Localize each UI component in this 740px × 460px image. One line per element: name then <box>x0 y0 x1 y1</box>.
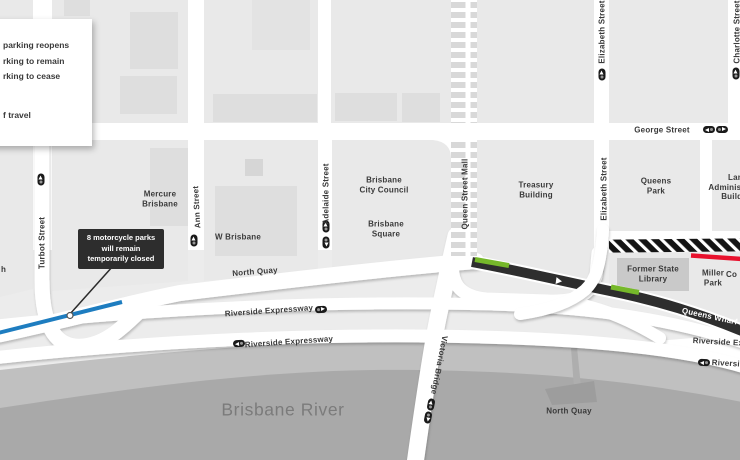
oneway-arrow-icon-riverside-right <box>698 359 710 367</box>
oneway-arrow-icon-riverside-lower <box>233 340 245 348</box>
place-label-miller-park: Miller Park <box>702 269 724 288</box>
place-label-queens-park: Queens Park <box>641 177 672 196</box>
place-label-north-quay-terminal: North Quay <box>546 406 592 416</box>
place-label-treasury: Treasury Building <box>519 181 554 200</box>
brisbane-parking-map: Turbot Street Ann Street Adelaide Street… <box>0 0 740 460</box>
street-label-adelaide: Adelaide Street <box>321 163 331 224</box>
place-label-land-admin: Land Administration Building <box>708 173 740 202</box>
street-label-charlotte: Charlotte Street <box>732 0 740 63</box>
legend-panel: parking reopens rking to remain rking to… <box>0 19 92 146</box>
legend-line-3: rking to cease <box>3 69 92 85</box>
oneway-arrow-icon-riverside-upper <box>315 306 327 314</box>
construction-hatch <box>609 238 740 252</box>
clipped-label-left-edge: h <box>1 265 6 275</box>
place-label-city-council: Brisbane City Council <box>359 176 408 195</box>
place-label-brisbane-river: Brisbane River <box>221 405 344 415</box>
place-label-former-state-library: Former State Library <box>627 265 679 284</box>
place-label-w-brisbane: W Brisbane <box>215 232 261 242</box>
oneway-arrow-icon-adelaide-down <box>323 237 330 249</box>
oneway-arrow-icon-george-right <box>716 126 728 133</box>
place-label-mercure: Mercure Brisbane <box>142 190 178 209</box>
oneway-arrow-icon-elizabeth <box>599 69 606 81</box>
legend-line-2: rking to remain <box>3 54 92 70</box>
oneway-arrow-icon-george-left <box>703 126 715 133</box>
motorcycle-parks-callout: 8 motorcycle parks will remain temporari… <box>78 229 164 269</box>
oneway-arrow-icon-ann <box>191 235 198 247</box>
street-label-queen-street-mall: Queen Street Mall <box>460 159 470 230</box>
legend-line-1: parking reopens <box>3 38 92 54</box>
place-label-brisbane-square: Brisbane Square <box>368 220 404 239</box>
oneway-arrow-icon-turbot <box>38 174 45 186</box>
clipped-label-right-edge: Co <box>726 270 737 280</box>
legend-line-4: f travel <box>3 108 92 124</box>
street-label-turbot: Turbot Street <box>37 217 47 269</box>
street-label-george: George Street <box>634 125 690 135</box>
street-label-elizabeth-top: Elizabeth Street <box>597 0 607 63</box>
oneway-arrow-icon-charlotte <box>733 68 740 80</box>
street-label-elizabeth-mid: Elizabeth Street <box>599 157 609 220</box>
